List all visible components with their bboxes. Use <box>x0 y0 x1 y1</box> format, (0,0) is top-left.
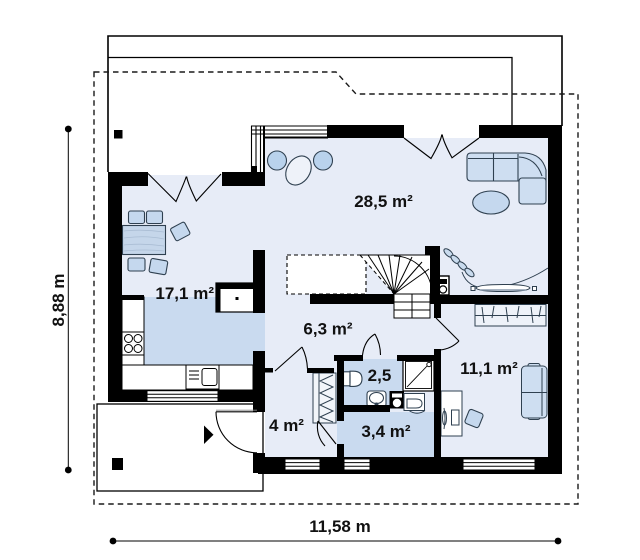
svg-text:17,1 m²: 17,1 m² <box>155 284 214 303</box>
svg-text:2,5: 2,5 <box>368 366 392 385</box>
svg-text:4 m²: 4 m² <box>269 416 304 435</box>
svg-text:11,58 m: 11,58 m <box>309 517 370 536</box>
svg-text:8,88 m: 8,88 m <box>49 274 68 327</box>
svg-text:3,4 m²: 3,4 m² <box>361 422 410 441</box>
svg-text:6,3 m²: 6,3 m² <box>303 320 352 339</box>
svg-text:11,1 m²: 11,1 m² <box>460 359 518 378</box>
svg-text:28,5 m²: 28,5 m² <box>354 192 413 211</box>
